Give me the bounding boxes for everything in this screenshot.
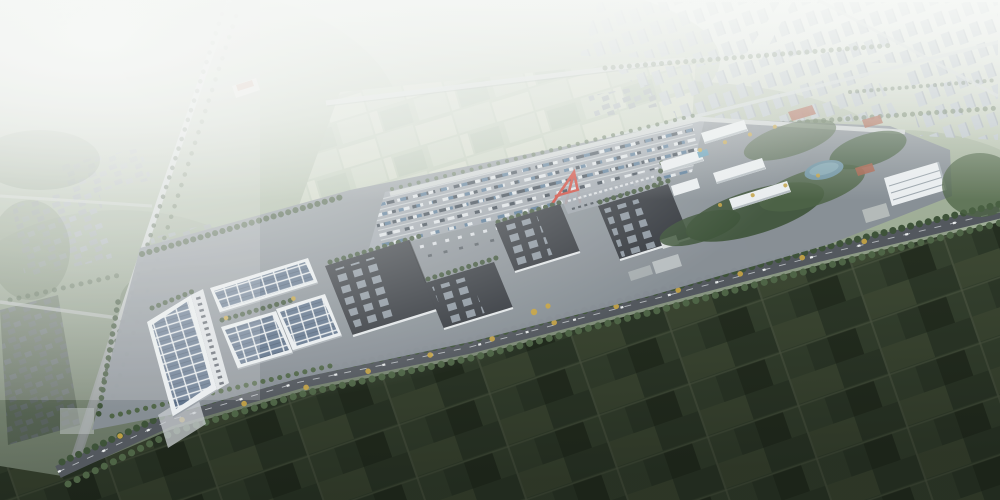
scene-canvas bbox=[0, 0, 1000, 500]
aerial-render-image bbox=[0, 0, 1000, 500]
atmosphere-haze bbox=[0, 0, 1000, 500]
